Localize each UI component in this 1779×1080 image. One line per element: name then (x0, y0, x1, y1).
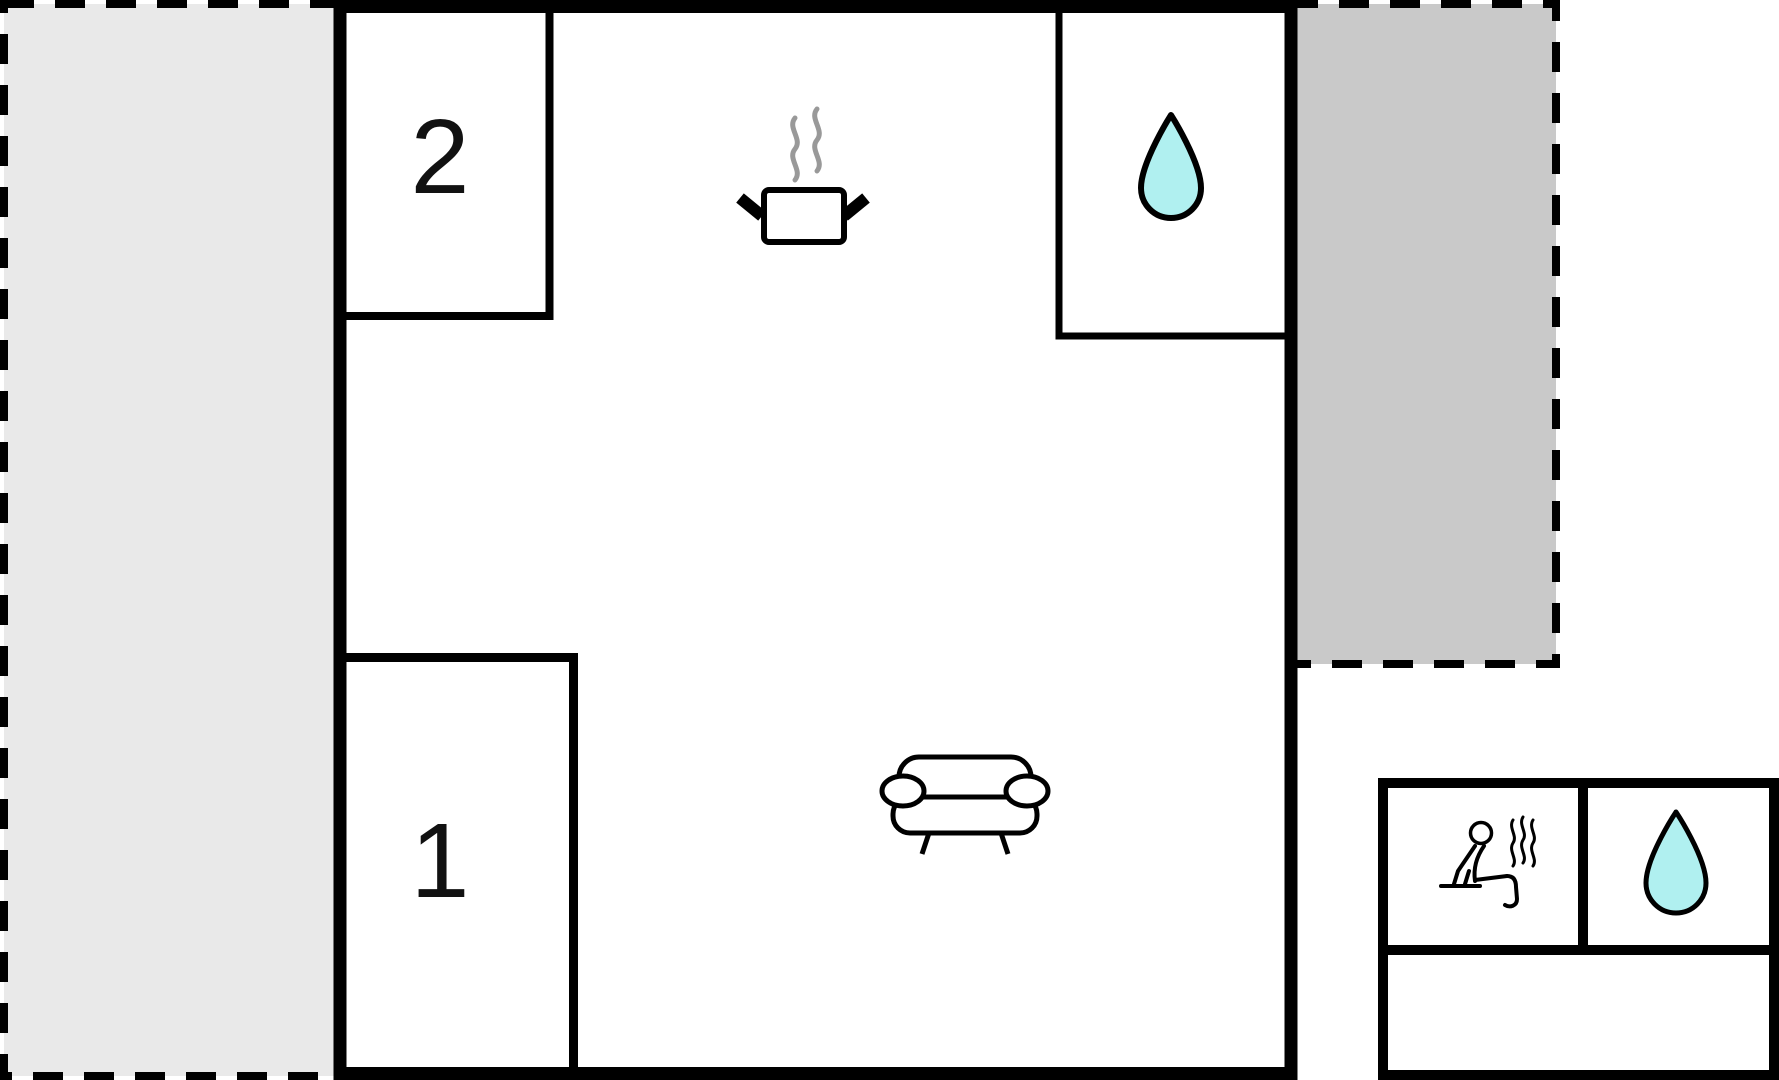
bedroom-1-label: 1 (375, 808, 505, 914)
pot-body (764, 190, 844, 242)
floor-plan: 2 1 (0, 0, 1779, 1080)
terrace-left (4, 4, 339, 1076)
floor-plan-drawing (0, 0, 1779, 1080)
sofa-armrest-left (882, 776, 924, 806)
sofa-armrest-right (1006, 776, 1048, 806)
bedroom-2-label: 2 (375, 104, 505, 210)
terrace-right (1288, 4, 1556, 664)
sauna-person-head (1471, 823, 1492, 844)
